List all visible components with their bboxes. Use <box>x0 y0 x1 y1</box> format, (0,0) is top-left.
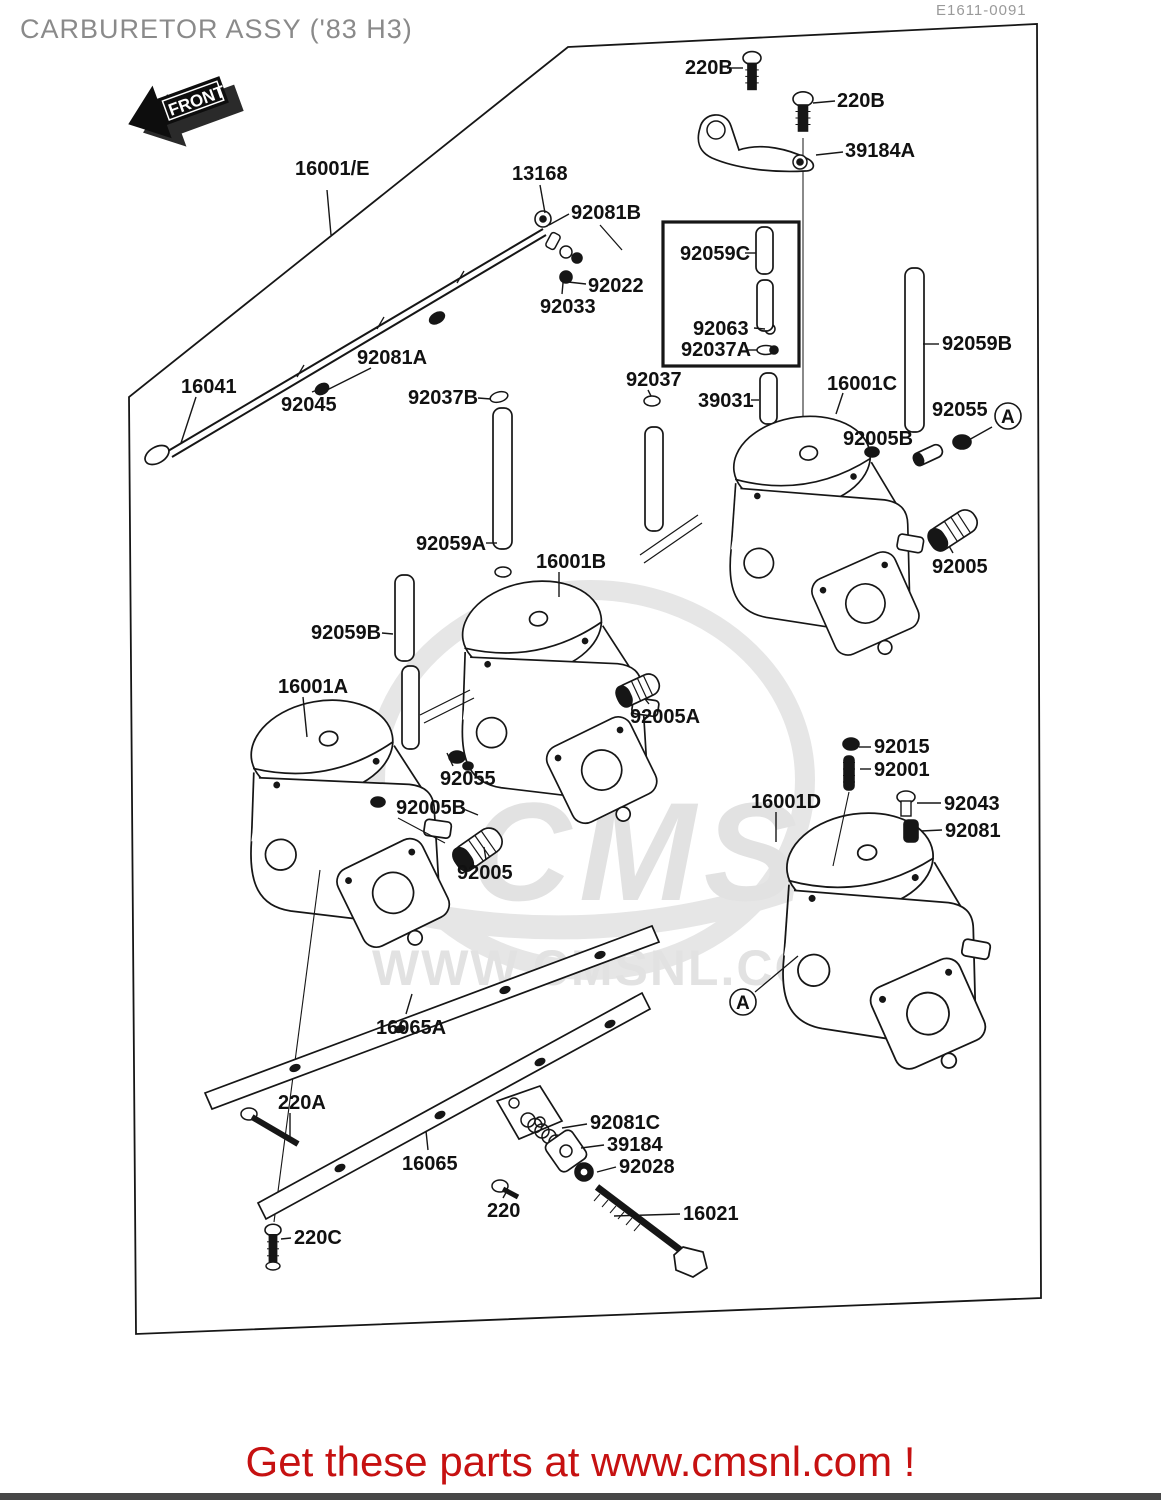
part-label-92055[interactable]: 92055 <box>440 768 496 790</box>
part-label-220b[interactable]: 220B <box>837 90 885 112</box>
part-label-92063[interactable]: 92063 <box>693 318 749 340</box>
leader-line <box>949 546 953 553</box>
part-label-16001d[interactable]: 16001D <box>751 791 821 813</box>
leader-line <box>325 368 371 391</box>
parts-diagram-page: CARBURETOR ASSY ('83 H3) E1611-0091 CMS … <box>0 0 1161 1500</box>
leader-line <box>281 1238 291 1239</box>
callout-circle-a[interactable]: A <box>995 403 1021 429</box>
part-label-92005[interactable]: 92005 <box>457 862 513 884</box>
part-label-39031[interactable]: 39031 <box>698 390 754 412</box>
bottom-bar <box>0 1493 1161 1500</box>
part-label-92005[interactable]: 92005 <box>932 556 988 578</box>
part-label-92037[interactable]: 92037 <box>626 369 682 391</box>
part-label-16001a[interactable]: 16001A <box>278 676 348 698</box>
part-label-92005a[interactable]: 92005A <box>630 706 700 728</box>
part-label-92045[interactable]: 92045 <box>281 394 337 416</box>
diagram-canvas: CMS WWW.CMSNL.COM FRONT 16001/E131689208… <box>0 0 1161 1500</box>
part-label-16065a[interactable]: 16065A <box>376 1017 446 1039</box>
front-arrow: FRONT <box>119 59 249 162</box>
exploded-parts-artwork <box>142 52 1009 1277</box>
part-label-92022[interactable]: 92022 <box>588 275 644 297</box>
part-label-92081a[interactable]: 92081A <box>357 347 427 369</box>
svg-text:A: A <box>1001 407 1015 428</box>
leader-line <box>478 398 491 399</box>
part-label-92001[interactable]: 92001 <box>874 759 930 781</box>
part-label-16021[interactable]: 16021 <box>683 1203 739 1225</box>
part-label-16065[interactable]: 16065 <box>402 1153 458 1175</box>
part-label-220a[interactable]: 220A <box>278 1092 326 1114</box>
leader-line <box>581 1145 604 1148</box>
leader-line <box>816 152 843 155</box>
leader-line <box>562 1124 587 1128</box>
part-label-39184[interactable]: 39184 <box>607 1134 663 1156</box>
leader-line <box>754 328 765 329</box>
part-label-92081[interactable]: 92081 <box>945 820 1001 842</box>
part-label-92043[interactable]: 92043 <box>944 793 1000 815</box>
svg-text:A: A <box>736 993 750 1014</box>
part-label-92015[interactable]: 92015 <box>874 736 930 758</box>
part-label-92005b[interactable]: 92005B <box>396 797 466 819</box>
part-label-16001c[interactable]: 16001C <box>827 373 897 395</box>
leader-line <box>568 282 586 284</box>
part-label-92081b[interactable]: 92081B <box>571 202 641 224</box>
leader-line <box>406 994 412 1014</box>
leader-line <box>549 214 569 225</box>
leader-line <box>614 1214 680 1216</box>
part-label-92059a[interactable]: 92059A <box>416 533 486 555</box>
part-label-92033[interactable]: 92033 <box>540 296 596 318</box>
part-label-16041[interactable]: 16041 <box>181 376 237 398</box>
part-label-92037b[interactable]: 92037B <box>408 387 478 409</box>
part-label-92081c[interactable]: 92081C <box>590 1112 660 1134</box>
leader-line <box>426 1131 428 1150</box>
footer-link[interactable]: Get these parts at www.cmsnl.com ! <box>0 1438 1161 1486</box>
part-label-92005b[interactable]: 92005B <box>843 428 913 450</box>
leader-line <box>813 101 835 103</box>
part-label-92055[interactable]: 92055 <box>932 399 988 421</box>
part-label-92059b[interactable]: 92059B <box>311 622 381 644</box>
leader-line <box>597 1167 616 1172</box>
part-label-92059c[interactable]: 92059C <box>680 243 750 265</box>
leader-line <box>327 190 331 235</box>
part-label-220b[interactable]: 220B <box>685 57 733 79</box>
part-label-92037a[interactable]: 92037A <box>681 339 751 361</box>
part-label-39184a[interactable]: 39184A <box>845 140 915 162</box>
part-label-220[interactable]: 220 <box>487 1200 520 1222</box>
leader-line <box>921 830 942 831</box>
part-label-13168[interactable]: 13168 <box>512 163 568 185</box>
part-label-16001b[interactable]: 16001B <box>536 551 606 573</box>
leader-line <box>836 393 843 414</box>
callout-circle-a[interactable]: A <box>730 989 756 1015</box>
part-label-220c[interactable]: 220C <box>294 1227 342 1249</box>
part-label-92028[interactable]: 92028 <box>619 1156 675 1178</box>
leader-line <box>967 427 992 441</box>
leader-line <box>540 185 545 213</box>
leader-line <box>382 633 393 634</box>
part-label-92059b[interactable]: 92059B <box>942 333 1012 355</box>
part-label-16001-e[interactable]: 16001/E <box>295 158 370 180</box>
